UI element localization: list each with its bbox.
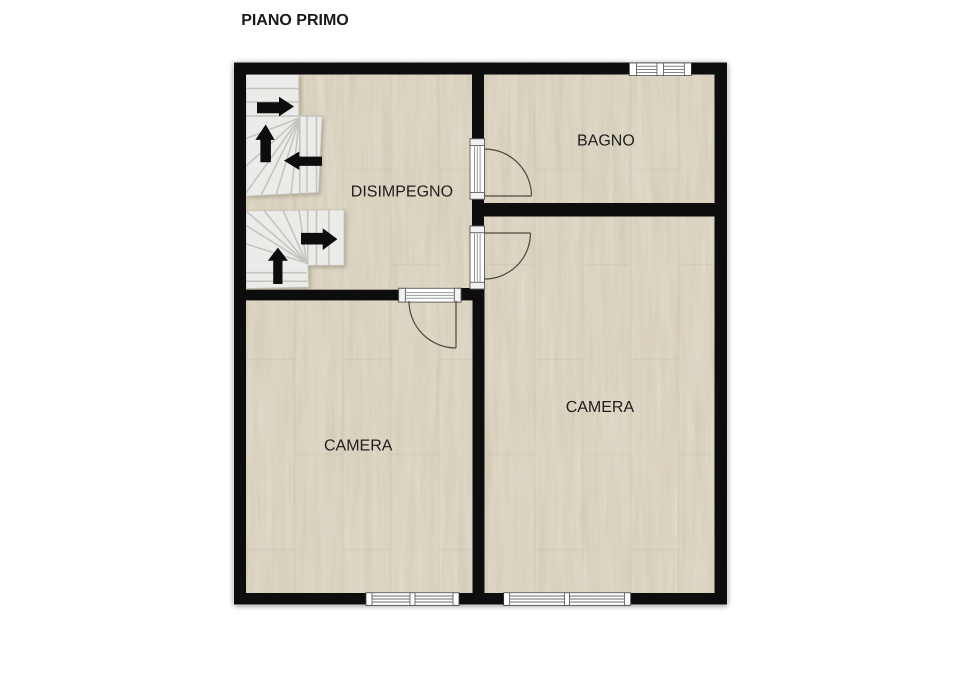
svg-text:CAMERA: CAMERA xyxy=(324,438,393,455)
svg-text:DISIMPEGNO: DISIMPEGNO xyxy=(351,184,453,201)
svg-text:CAMERA: CAMERA xyxy=(566,399,635,416)
svg-text:PIANO PRIMO: PIANO PRIMO xyxy=(241,12,349,29)
svg-text:BAGNO: BAGNO xyxy=(577,133,635,150)
